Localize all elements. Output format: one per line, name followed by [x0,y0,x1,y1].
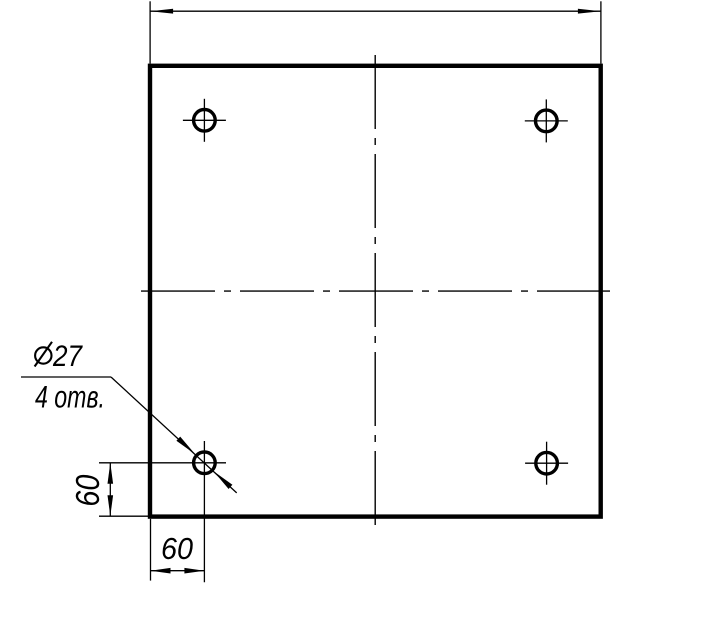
svg-text:60: 60 [161,531,193,566]
svg-text:4 отв.: 4 отв. [35,379,105,415]
svg-text:60: 60 [69,474,106,507]
svg-text:27: 27 [52,340,83,373]
